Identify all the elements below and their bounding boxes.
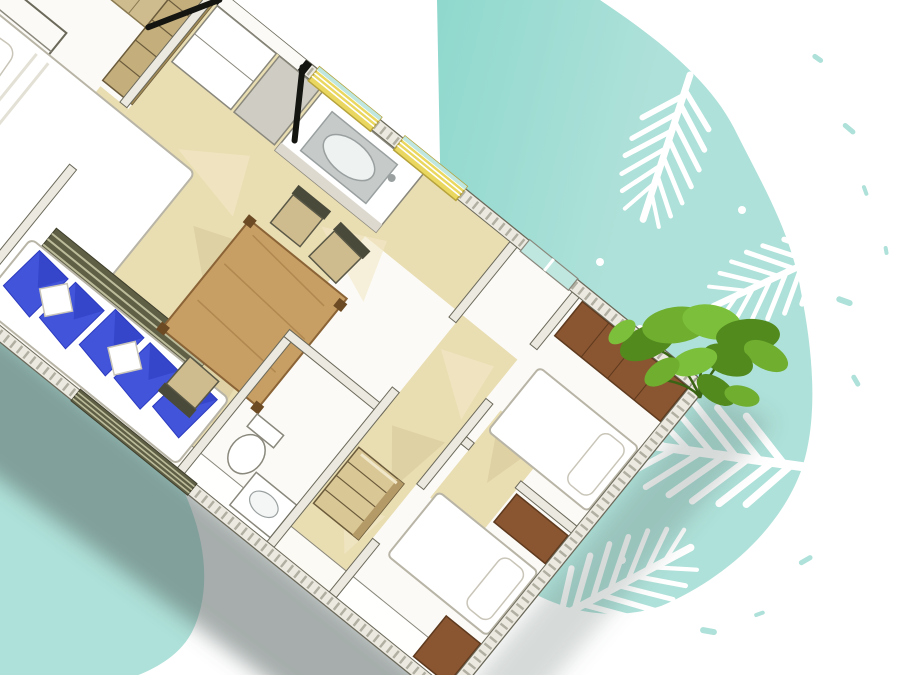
sofa-pillow [40, 284, 73, 317]
scene-canvas [0, 0, 900, 675]
floor-plan-illustration [0, 0, 900, 675]
sofa-pillow [108, 341, 142, 375]
